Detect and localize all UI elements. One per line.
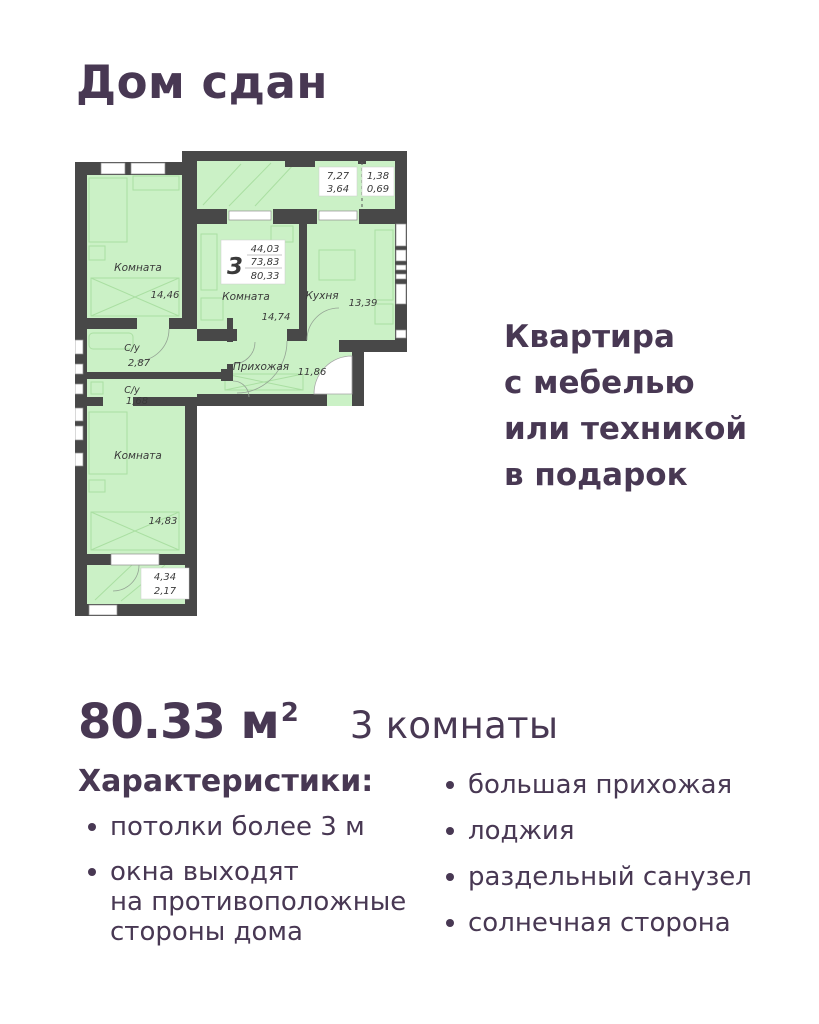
room-label: Комната	[114, 262, 162, 274]
list-item: потолки более 3 м	[78, 812, 418, 842]
floor-plan-svg: Комната 14,46 3 44,03 73,83 80,33 Комнат…	[75, 150, 432, 617]
room-area: 11,86	[298, 367, 327, 378]
balcony-area-full: 1,38	[367, 171, 389, 182]
bullet-icon	[88, 868, 96, 876]
total-area: 80.33 м2	[78, 694, 298, 750]
stamp-rooms: 3	[227, 254, 243, 280]
list-item: окна выходятна противоположныестороны до…	[78, 857, 418, 947]
stamp-area2: 73,83	[251, 257, 280, 268]
page-title: Дом сдан	[76, 56, 328, 109]
list-item: лоджия	[436, 816, 796, 846]
balcony-area-half: 0,69	[367, 184, 389, 195]
promo-line: Квартира	[504, 314, 747, 360]
list-item-text: раздельный санузел	[468, 862, 752, 892]
balcony-area-full: 7,27	[327, 171, 350, 182]
stamp-area3: 80,33	[251, 271, 280, 282]
room-label: Прихожая	[233, 361, 289, 373]
room-area: 13,39	[349, 298, 378, 309]
promo-line: с мебелью	[504, 360, 747, 406]
stamp-area1: 44,03	[251, 244, 280, 255]
list-item: раздельный санузел	[436, 862, 796, 892]
area-superscript: 2	[281, 698, 298, 728]
room-area: 14,46	[151, 290, 180, 301]
rooms-count: 3 комнаты	[350, 704, 559, 747]
list-item-text: окна выходятна противоположныестороны до…	[110, 857, 406, 947]
characteristics-list-left: потолки более 3 м окна выходятна противо…	[78, 812, 418, 947]
list-item: солнечная сторона	[436, 908, 796, 938]
bullet-icon	[446, 873, 454, 881]
room-label: С/у	[124, 343, 140, 354]
room-area: 1,68	[126, 396, 148, 407]
promo-text: Квартира с мебелью или техникой в подаро…	[504, 314, 747, 498]
floor-plan: Комната 14,46 3 44,03 73,83 80,33 Комнат…	[75, 150, 432, 617]
room-area: 2,87	[128, 358, 151, 369]
balcony-area-half: 3,64	[327, 184, 349, 195]
room-label: Кухня	[305, 290, 338, 302]
bullet-icon	[446, 781, 454, 789]
characteristics-heading: Характеристики:	[78, 764, 373, 799]
bullet-icon	[88, 823, 96, 831]
balcony-area-full: 4,34	[154, 572, 176, 583]
balcony-area-half: 2,17	[154, 586, 177, 597]
room-label: Комната	[114, 450, 162, 462]
list-item-text: лоджия	[468, 816, 574, 846]
list-item-text: потолки более 3 м	[110, 812, 365, 842]
room-label: С/у	[124, 385, 140, 396]
characteristics-list-right: большая прихожая лоджия раздельный сануз…	[436, 770, 796, 938]
room-area: 14,74	[262, 312, 291, 323]
room-label: Комната	[222, 291, 270, 303]
list-item-text: большая прихожая	[468, 770, 732, 800]
promo-line: или техникой	[504, 406, 747, 452]
list-item-text: солнечная сторона	[468, 908, 731, 938]
apartment-summary: 80.33 м2 3 комнаты	[78, 694, 558, 750]
flyer-page: Дом сдан	[0, 0, 819, 1024]
room-area: 14,83	[149, 516, 178, 527]
promo-line: в подарок	[504, 452, 747, 498]
bullet-icon	[446, 919, 454, 927]
bullet-icon	[446, 827, 454, 835]
list-item: большая прихожая	[436, 770, 796, 800]
